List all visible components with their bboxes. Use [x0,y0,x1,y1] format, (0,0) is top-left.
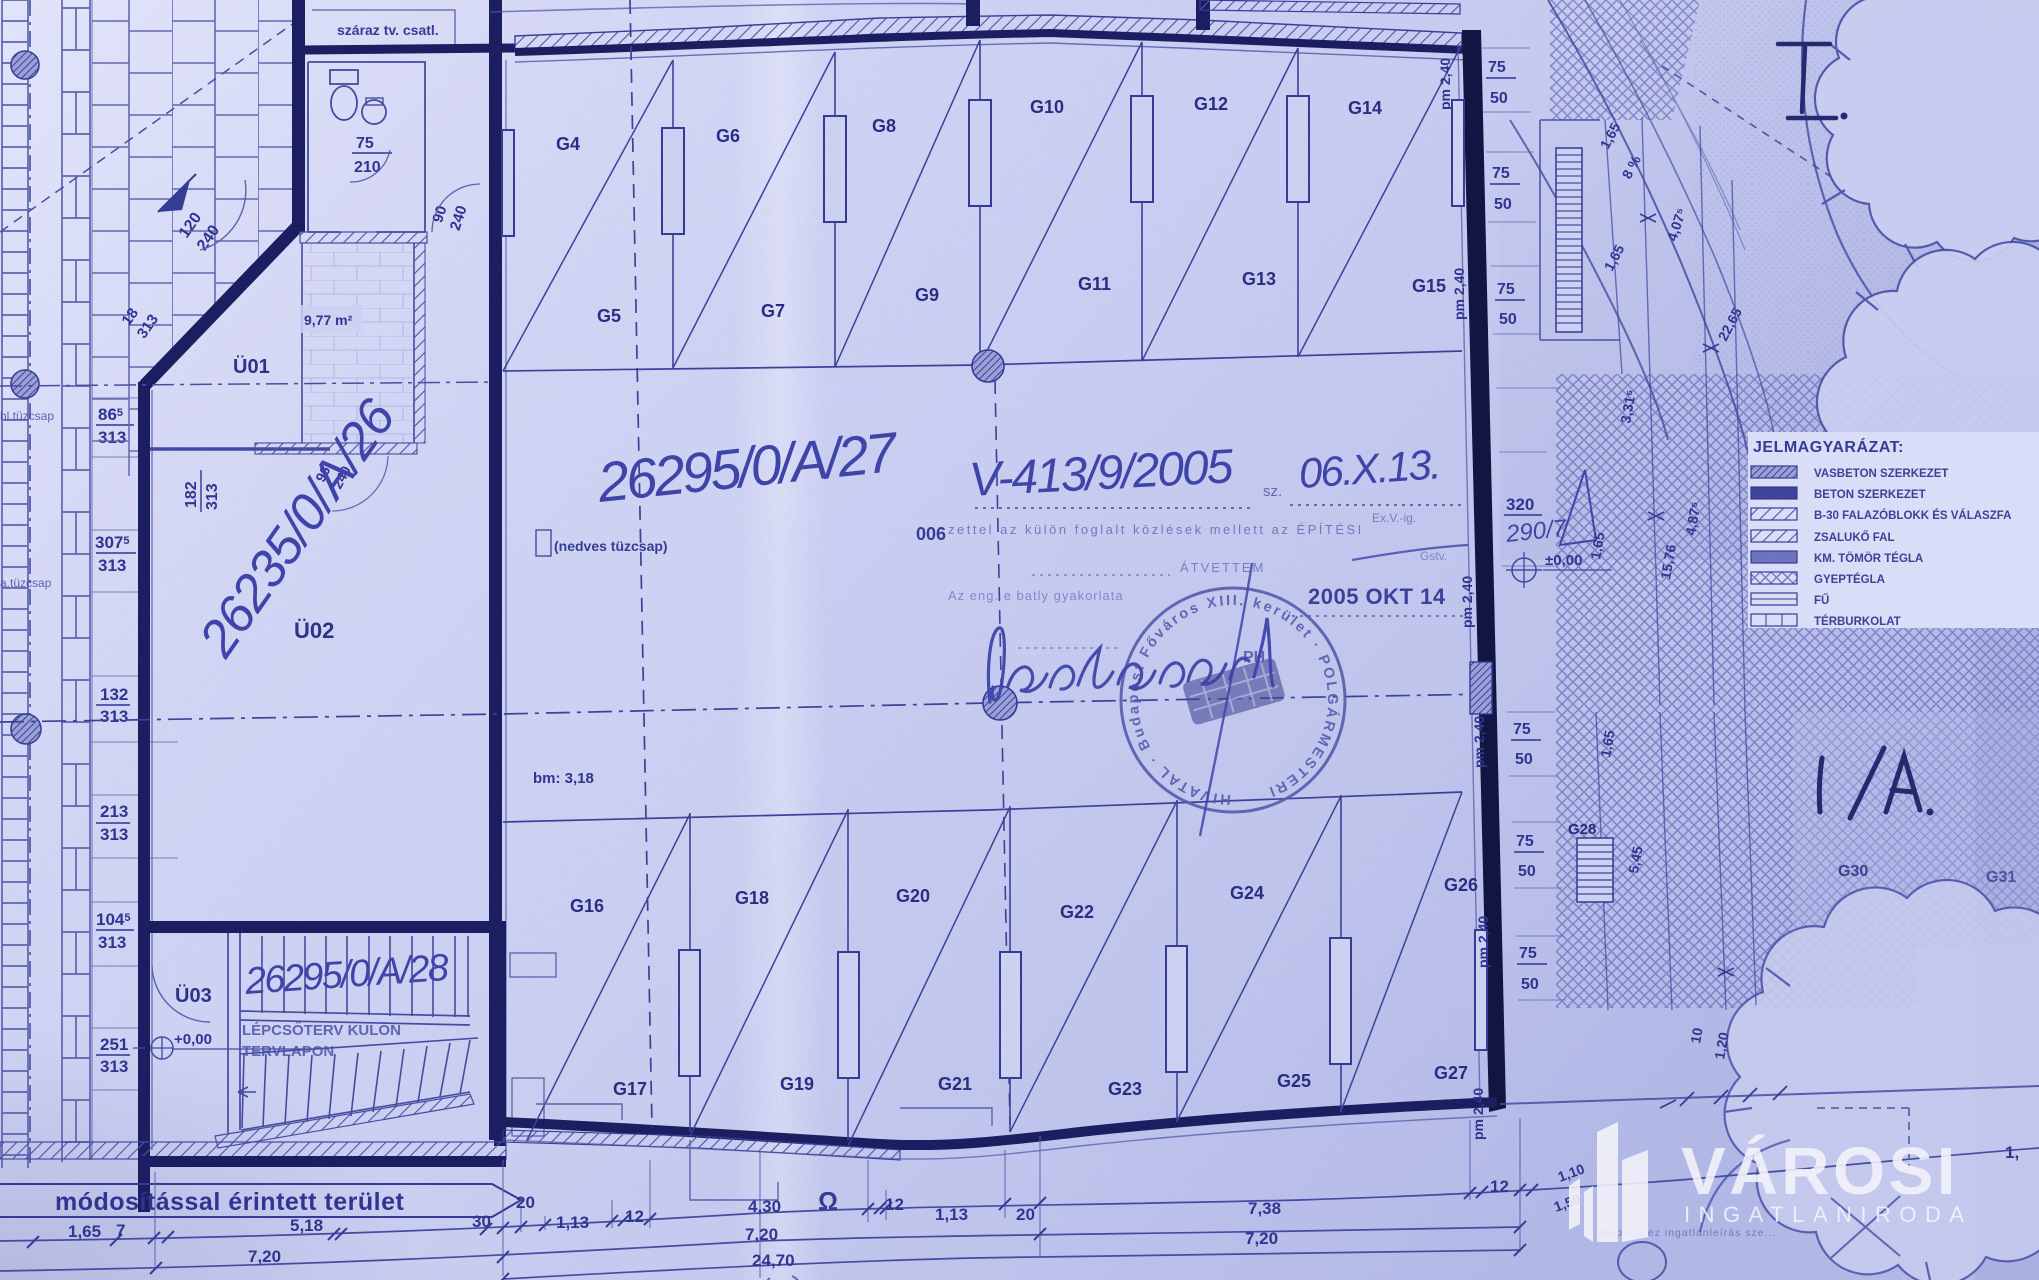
svg-text:INGATLANIRODA: INGATLANIRODA [1684,1202,1973,1227]
svg-text:VÁROSI: VÁROSI [1681,1134,1959,1209]
